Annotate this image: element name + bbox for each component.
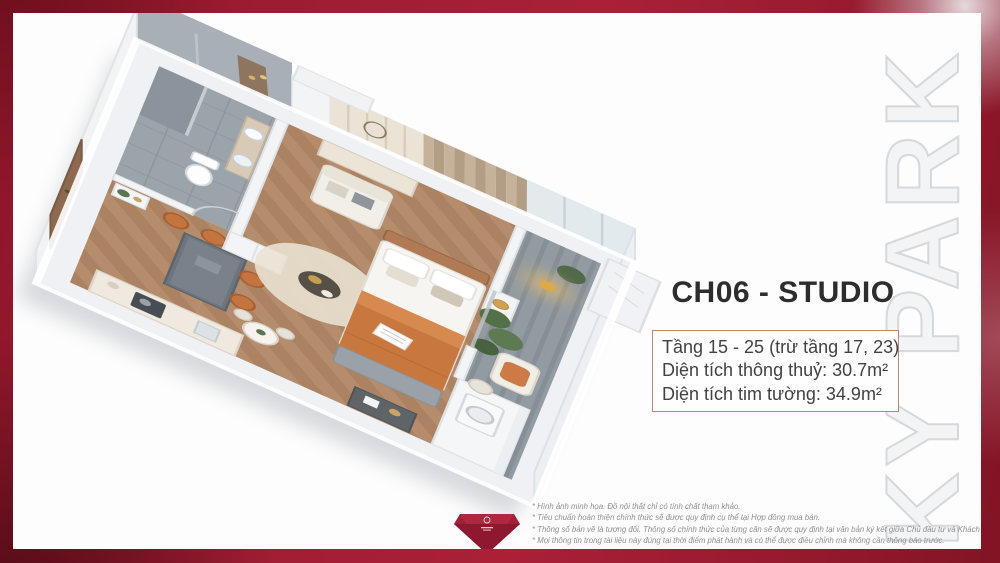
net-area: Diện tích thông thuỷ: 30.7m² — [662, 359, 889, 382]
developer-logo — [450, 510, 524, 549]
disclaimer-line: * Thông số bản vẽ là tương đối. Thông số… — [532, 524, 981, 535]
disclaimer-line: * Hình ảnh minh họa. Đồ nội thất chỉ có … — [532, 501, 981, 512]
disclaimer-block: * Hình ảnh minh họa. Đồ nội thất chỉ có … — [532, 501, 981, 546]
floor-range: Tầng 15 - 25 (trừ tầng 17, 23) — [662, 336, 889, 359]
unit-title: CH06 - STUDIO — [658, 276, 908, 310]
disclaimer-line: * Mọi thông tin trong tài liệu này đúng … — [532, 535, 981, 546]
gross-area: Diện tích tim tường: 34.9m² — [662, 383, 889, 406]
content-panel: SKY PARK — [13, 13, 981, 549]
unit-info-box: Tầng 15 - 25 (trừ tầng 17, 23) Diện tích… — [652, 330, 899, 412]
brochure-page: SKY PARK — [0, 0, 1000, 563]
disclaimer-line: * Tiêu chuẩn hoàn thiện chính thức sẽ đư… — [532, 512, 981, 523]
diamond-logo-icon — [450, 510, 524, 549]
